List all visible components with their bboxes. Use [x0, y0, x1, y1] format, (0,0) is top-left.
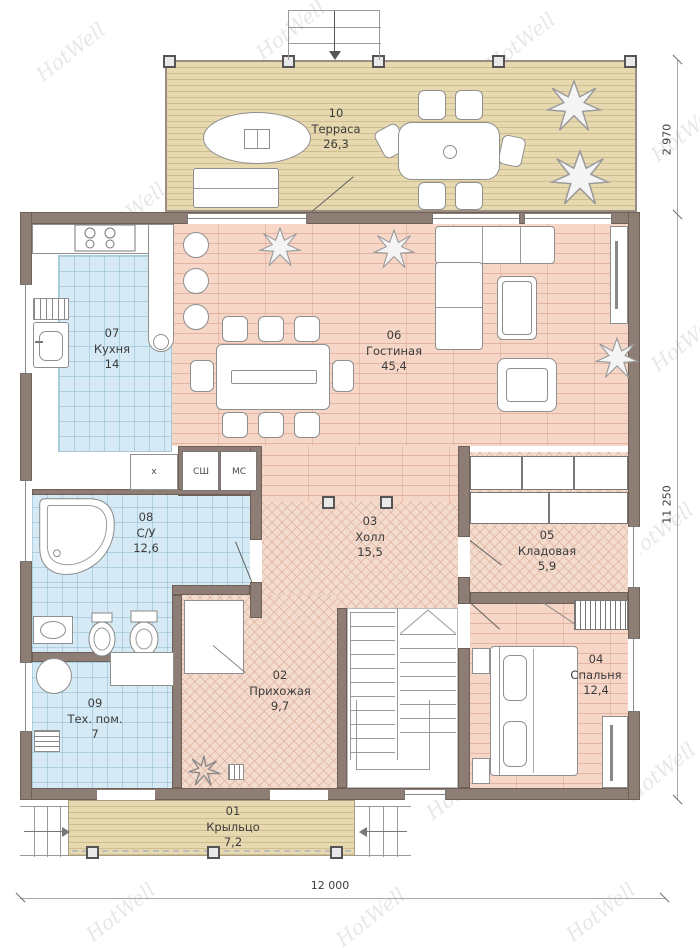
- column: [624, 55, 637, 68]
- plant-icon: [549, 148, 611, 210]
- window: [20, 662, 32, 732]
- dimension-line: [677, 60, 678, 800]
- room-label-porch: 01Крыльцо7,2: [206, 804, 260, 851]
- window: [20, 480, 32, 562]
- terrace-chair: [455, 182, 483, 210]
- bar-stool: [183, 232, 209, 258]
- column: [322, 496, 335, 509]
- closet-box: [470, 492, 549, 524]
- equipment-box: [34, 730, 60, 752]
- dimension-line: [20, 898, 665, 899]
- dish-rack: [33, 298, 69, 320]
- sofa-corner: [435, 262, 483, 350]
- closet-label: СШ: [193, 467, 209, 477]
- sliding-window: [187, 214, 307, 224]
- porch-steps: [20, 806, 68, 856]
- column: [86, 846, 99, 859]
- wall-segment: [458, 446, 470, 537]
- terrace-chair: [418, 182, 446, 210]
- dimension-house-width: 12 000: [295, 879, 365, 892]
- window: [404, 790, 446, 800]
- plant-icon: [258, 226, 302, 270]
- wall-segment: [172, 585, 250, 595]
- porch-steps: [355, 806, 411, 856]
- bathroom-sink: [33, 616, 73, 644]
- chair: [258, 316, 284, 342]
- entrance-closet: [184, 600, 244, 674]
- kitchen-sink: [33, 322, 69, 368]
- window: [20, 284, 32, 374]
- wardrobe-rail: [574, 600, 628, 630]
- plant-icon: [372, 228, 416, 272]
- wall-segment: [337, 608, 347, 788]
- coffee-table: [497, 276, 537, 340]
- tech-table: [110, 652, 174, 686]
- door-opening: [97, 790, 155, 800]
- room-label-living: 06Гостиная45,4: [366, 328, 422, 375]
- closet-label: х: [151, 467, 156, 477]
- watermark: HotWell: [81, 878, 160, 947]
- bathtub: [34, 494, 120, 580]
- window: [524, 214, 612, 224]
- door-opening: [270, 790, 328, 800]
- dresser: [602, 716, 628, 788]
- tv-cabinet: [610, 226, 628, 324]
- room-label-entrance: 02Прихожая9,7: [249, 668, 311, 715]
- column: [492, 55, 505, 68]
- room-label-terrace: 10Терраса26,3: [311, 106, 360, 153]
- stair-arrow: [400, 608, 456, 636]
- dimension-house-depth: 11 250: [661, 470, 674, 540]
- room-label-bathroom: 08С/У12,6: [133, 510, 159, 557]
- wall-segment: [458, 648, 470, 788]
- terrace-bench: [193, 168, 279, 208]
- bed: [490, 646, 578, 776]
- closet-box: [549, 492, 628, 524]
- terrace-chair: [455, 90, 483, 120]
- chair: [222, 316, 248, 342]
- column: [163, 55, 176, 68]
- bar-counter: [148, 224, 174, 352]
- room-label-tech: 09Тех. пом.7: [67, 696, 122, 743]
- book-icon: [244, 129, 270, 149]
- window: [432, 214, 520, 224]
- watermark: HotWell: [561, 878, 640, 947]
- room-label-hall: 03Холл15,5: [355, 514, 385, 561]
- closet-label: МС: [232, 467, 246, 477]
- plant-icon: [594, 336, 640, 382]
- doormat: [228, 764, 244, 780]
- watermark: HotWell: [331, 883, 410, 948]
- chair: [332, 360, 354, 392]
- bar-counter-end: [153, 334, 169, 350]
- coat-rack-icon: [186, 752, 222, 788]
- nightstand: [472, 758, 490, 784]
- sofa-corner: [435, 226, 555, 264]
- room-label-bedroom: 04Спальня12,4: [570, 652, 621, 699]
- watermark: HotWell: [646, 308, 700, 377]
- chair: [294, 316, 320, 342]
- floor-plan: HotWellHotWellHotWellHotWellHotWellHotWe…: [0, 0, 700, 948]
- armchair: [497, 358, 557, 412]
- nightstand: [472, 648, 490, 674]
- chair: [190, 360, 214, 392]
- closet-box: [574, 456, 628, 490]
- room-label-kitchen: 07Кухня14: [94, 326, 130, 373]
- arrow-down-icon: [329, 51, 341, 60]
- boiler: [36, 658, 72, 694]
- closet-box: [470, 456, 522, 490]
- stove-icon: [74, 224, 136, 252]
- room-label-storage: 05Кладовая5,9: [518, 528, 576, 575]
- bar-stool: [183, 304, 209, 330]
- window: [628, 526, 640, 588]
- chair: [222, 412, 248, 438]
- arrow-right-icon: [62, 827, 70, 837]
- arrow-left-icon: [359, 827, 367, 837]
- dining-table: [216, 344, 330, 410]
- toilet: [126, 610, 162, 658]
- watermark: HotWell: [31, 18, 110, 87]
- chair: [294, 412, 320, 438]
- column: [380, 496, 393, 509]
- column: [330, 846, 343, 859]
- plant-icon: [545, 78, 603, 136]
- dimension-terrace-depth: 2 970: [661, 105, 674, 175]
- wall-segment: [172, 595, 182, 788]
- terrace-steps: [288, 10, 380, 60]
- closet-box: [522, 456, 574, 490]
- oval-table: [203, 112, 311, 164]
- living-room-floor: [262, 446, 458, 502]
- wall-segment: [250, 582, 262, 618]
- bar-stool: [183, 268, 209, 294]
- wall-segment: [458, 577, 470, 604]
- stair-landing-line: [356, 700, 430, 770]
- window: [628, 638, 640, 712]
- terrace-chair: [418, 90, 446, 120]
- dining-table-terrace: [398, 122, 500, 180]
- chair: [258, 412, 284, 438]
